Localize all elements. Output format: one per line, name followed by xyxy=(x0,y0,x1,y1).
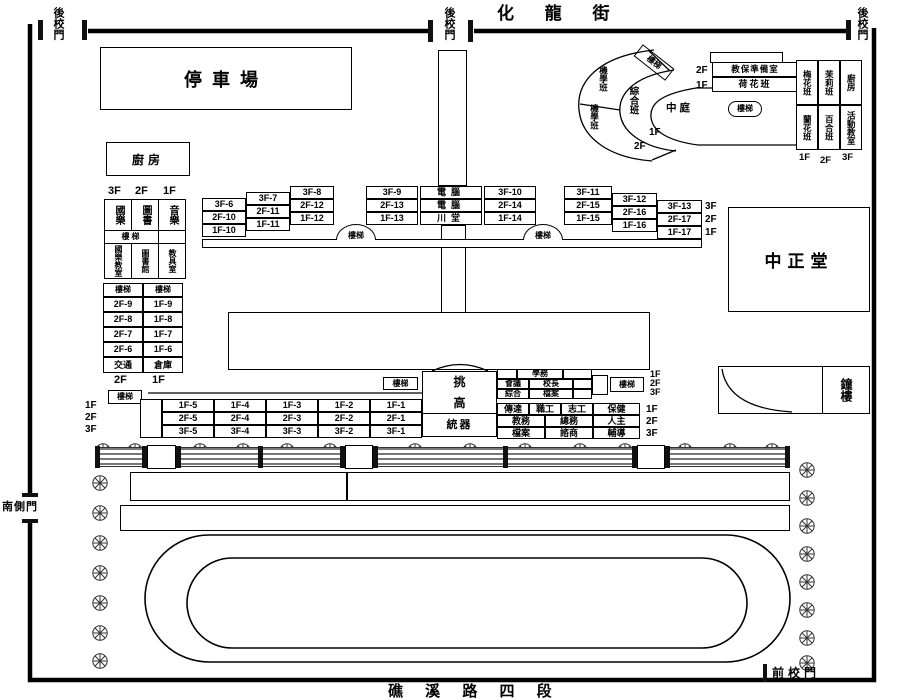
west-upper-floor-3f: 3F xyxy=(108,186,121,197)
courtyard-label: 中庭 xyxy=(666,103,693,114)
room-1f-7: 1F-7 xyxy=(143,327,183,342)
room-1f-1: 1F-1 xyxy=(370,399,422,412)
fan-class-lower: 機學班 xyxy=(590,104,599,130)
north-corridor xyxy=(438,50,467,186)
kg-floor-1f: 1F xyxy=(696,81,708,91)
room-3f-8: 3F-8 xyxy=(290,186,334,199)
office-chuanda: 傳達 xyxy=(497,403,529,415)
kg-east-floor-3f: 3F xyxy=(842,153,853,163)
room-2f-13: 2F-13 xyxy=(366,199,418,212)
room-computer-3f: 電腦 xyxy=(420,186,482,199)
room-3f-3: 3F-3 xyxy=(266,425,318,438)
admin-lower-floor-2f: 2F xyxy=(646,417,658,427)
room-3f-9: 3F-9 xyxy=(366,186,418,199)
room-2f-14: 2F-14 xyxy=(484,199,536,212)
bleacher-gap-box xyxy=(637,445,665,469)
north-floor-2f: 2F xyxy=(705,215,717,225)
room-1f-9: 1F-9 xyxy=(143,297,183,312)
admin-upper-cell-empty-4 xyxy=(573,389,592,399)
west-lower-floor-2f: 2F xyxy=(114,375,127,386)
room-3f-12: 3F-12 xyxy=(612,193,657,206)
west-upper-floor-1f: 1F xyxy=(163,186,176,197)
admin-upper-cell-empty-2 xyxy=(563,369,592,379)
west-lower-stairs-right: 樓梯 xyxy=(143,283,183,297)
room-1f-10: 1F-10 xyxy=(202,224,246,237)
street-top: 化 龍 街 xyxy=(497,5,622,22)
room-tushu: 圖書 xyxy=(131,199,159,231)
front-gate-label: 前校門 xyxy=(772,667,820,679)
kg-room-chufang: 廚房 xyxy=(840,60,862,105)
bleacher-gap-box xyxy=(147,445,176,469)
admin-upper-cell-empty-3 xyxy=(573,379,592,389)
room-1f-13: 1F-13 xyxy=(366,212,418,225)
room-2f-11: 2F-11 xyxy=(246,205,290,218)
office-jiaowu: 教務 xyxy=(497,415,545,427)
room-2f-10: 2F-10 xyxy=(202,211,246,224)
southwest-stairs: 樓梯 xyxy=(108,390,142,404)
office-baojian: 保健 xyxy=(593,403,640,415)
room-1f-3: 1F-3 xyxy=(266,399,318,412)
south-floor-2f: 2F xyxy=(85,413,97,423)
field-apron xyxy=(120,505,790,531)
office-zhigong: 職工 xyxy=(529,403,561,415)
tower-label-bottom: 統器 xyxy=(422,413,497,437)
room-2f-6: 2F-6 xyxy=(103,342,143,357)
tower-label-mid: 高 xyxy=(422,397,497,409)
room-3f-2: 3F-2 xyxy=(318,425,370,438)
kg-room-prep: 教保準備室 xyxy=(712,62,798,77)
fan-floor-1f: 1F xyxy=(649,128,661,138)
room-hall-1f: 川堂 xyxy=(420,212,482,225)
bleacher-post xyxy=(503,446,508,468)
atrium-tower-dome xyxy=(428,357,492,372)
room-3f-1: 3F-1 xyxy=(370,425,422,438)
south-floor-3f: 3F xyxy=(85,425,97,435)
room-jiaojushi: 教具室 xyxy=(158,243,186,279)
room-1f-4: 1F-4 xyxy=(214,399,266,412)
room-guoyue-jiaoshi: 國樂教室 xyxy=(104,243,132,279)
west-lower-stairs-left: 樓梯 xyxy=(103,283,143,297)
west-lower-floor-1f: 1F xyxy=(152,375,165,386)
south-end-cell xyxy=(140,399,162,438)
room-3f-4: 3F-4 xyxy=(214,425,266,438)
bell-tower-curve xyxy=(718,366,870,414)
auditorium: 中正堂 xyxy=(728,207,870,312)
kg-room-hehua: 荷花班 xyxy=(712,77,798,92)
kitchen-room: 廚房 xyxy=(106,142,190,176)
room-3f-5: 3F-5 xyxy=(162,425,214,438)
west-upper-stairs: 樓梯 xyxy=(104,230,159,244)
admin-stairs: 樓梯 xyxy=(610,377,644,392)
room-2f-2: 2F-2 xyxy=(318,412,370,425)
west-upper-floor-2f: 2F xyxy=(135,186,148,197)
room-computer-2f: 電腦 xyxy=(420,199,482,212)
running-track xyxy=(145,535,790,662)
admin-upper-cell-empty-1 xyxy=(497,369,517,379)
walkway-west xyxy=(130,472,347,501)
west-upper-empty-cell xyxy=(158,230,186,244)
room-1f-6: 1F-6 xyxy=(143,342,183,357)
room-2f-1: 2F-1 xyxy=(370,412,422,425)
office-dangan: 檔案 xyxy=(497,427,545,439)
room-1f-11: 1F-11 xyxy=(246,218,290,231)
bleacher-post xyxy=(95,446,100,468)
room-2f-16: 2F-16 xyxy=(612,206,657,219)
bleacher-segment xyxy=(95,447,147,467)
office-dangan-upper: 檔案 xyxy=(529,389,573,399)
campus-map: 化 龍 街 礁 溪 路 四 段 後校門 後校門 後校門 前校門 南側門 停車場 … xyxy=(0,0,900,700)
room-3f-7: 3F-7 xyxy=(246,192,290,205)
room-1f-17: 1F-17 xyxy=(657,226,702,239)
street-bottom: 礁 溪 路 四 段 xyxy=(388,684,561,699)
room-2f-5: 2F-5 xyxy=(162,412,214,425)
north-floor-3f: 3F xyxy=(705,202,717,212)
kg-room-meihua: 梅花班 xyxy=(796,60,818,105)
admin-upper-cell-empty-5 xyxy=(592,375,608,395)
north-floor-1f: 1F xyxy=(705,228,717,238)
tower-label-top: 挑 xyxy=(422,376,497,388)
room-1f-12: 1F-12 xyxy=(290,212,334,225)
kg-east-floor-1f: 1F xyxy=(799,153,810,163)
room-3f-10: 3F-10 xyxy=(484,186,536,199)
kg-room-lanhua: 蘭花班 xyxy=(796,105,818,150)
room-1f-5: 1F-5 xyxy=(162,399,214,412)
fan-class-upper: 機學班 xyxy=(599,66,608,92)
office-xuewu: 學務 xyxy=(517,369,563,379)
office-xiaozhang: 校長 xyxy=(529,379,573,389)
room-2f-9: 2F-9 xyxy=(103,297,143,312)
room-jiaotong: 交通 xyxy=(103,357,143,373)
office-zongwu: 總務 xyxy=(545,415,593,427)
back-gate-center-label: 後校門 xyxy=(443,7,454,40)
room-3f-11: 3F-11 xyxy=(564,186,612,199)
room-guoyue: 國樂 xyxy=(104,199,132,231)
courtyard-stairs: 樓梯 xyxy=(728,101,762,117)
south-stairs: 樓梯 xyxy=(383,377,418,390)
bleacher-post xyxy=(176,446,181,468)
bleacher-post xyxy=(258,446,263,468)
room-1f-14: 1F-14 xyxy=(484,212,536,225)
walkway-east xyxy=(347,472,790,501)
office-zixun: 諮商 xyxy=(545,427,593,439)
room-1f-8: 1F-8 xyxy=(143,312,183,327)
room-2f-17: 2F-17 xyxy=(657,213,702,226)
parking-lot: 停車場 xyxy=(100,47,352,110)
fan-floor-2f: 2F xyxy=(634,142,646,152)
room-3f-6: 3F-6 xyxy=(202,198,246,211)
fan-class-center: 綜合班 xyxy=(628,86,638,115)
kg-east-floor-2f: 2F xyxy=(820,156,831,166)
room-1f-15: 1F-15 xyxy=(564,212,612,225)
kg-room-baihe: 百合班 xyxy=(818,105,840,150)
admin-upper-floor-3f: 3F xyxy=(650,388,661,397)
kg-floor-2f: 2F xyxy=(696,66,708,76)
south-gate-label: 南側門 xyxy=(2,502,38,513)
room-yinyue: 音樂 xyxy=(158,199,186,231)
room-2f-12: 2F-12 xyxy=(290,199,334,212)
kg-room-moli: 茉莉班 xyxy=(818,60,840,105)
office-zonghe: 綜合 xyxy=(497,389,529,399)
back-gate-left-label: 後校門 xyxy=(52,7,63,40)
admin-lower-floor-1f: 1F xyxy=(646,405,658,415)
office-huiyi: 會議 xyxy=(497,379,529,389)
room-2f-3: 2F-3 xyxy=(266,412,318,425)
office-renzhu: 人主 xyxy=(593,415,640,427)
room-1f-16: 1F-16 xyxy=(612,219,657,232)
room-2f-4: 2F-4 xyxy=(214,412,266,425)
north-building-walkway xyxy=(202,239,702,248)
bleacher-gap-box xyxy=(345,445,373,469)
kg-room-huodong: 活動教室 xyxy=(840,105,862,150)
bleacher-segment xyxy=(665,447,790,467)
office-zhigong2: 志工 xyxy=(561,403,593,415)
room-2f-7: 2F-7 xyxy=(103,327,143,342)
room-cangku: 倉庫 xyxy=(143,357,183,373)
room-2f-15: 2F-15 xyxy=(564,199,612,212)
bleacher-post xyxy=(665,446,670,468)
room-1f-2: 1F-2 xyxy=(318,399,370,412)
office-fudao: 輔導 xyxy=(593,427,640,439)
back-gate-right-label: 後校門 xyxy=(856,7,867,40)
bleacher-post xyxy=(373,446,378,468)
room-3f-13: 3F-13 xyxy=(657,200,702,213)
room-tushuguan: 圖書館 xyxy=(131,243,159,279)
room-2f-8: 2F-8 xyxy=(103,312,143,327)
admin-lower-floor-3f: 3F xyxy=(646,429,658,439)
south-floor-1f: 1F xyxy=(85,401,97,411)
bleacher-post xyxy=(785,446,790,468)
